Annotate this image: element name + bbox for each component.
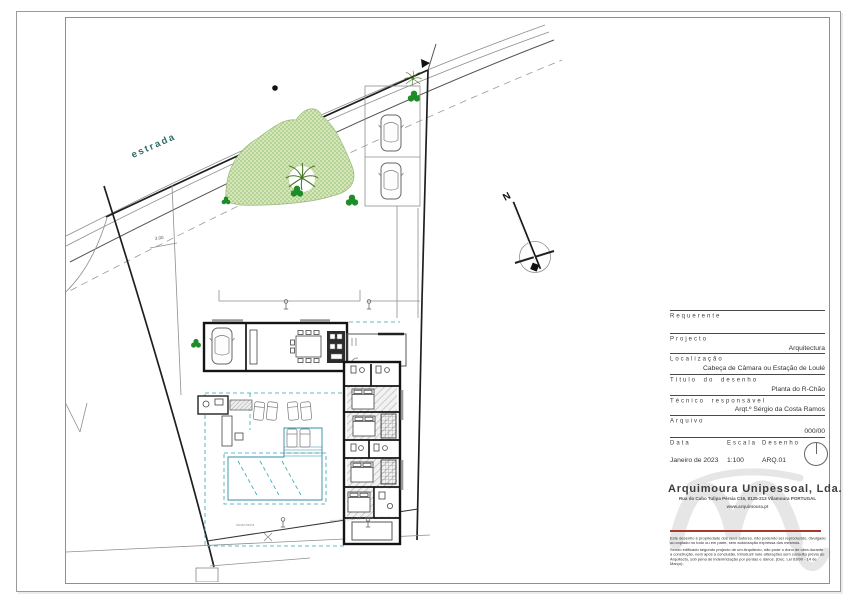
stamp-circle-icon [804,442,828,466]
field-label-projecto: Projecto [670,335,825,342]
company-address: Rua do Cabo Tulipa Pérsia C16, 8125-213 … [670,496,825,501]
field-label-requerente: Requerente [670,312,825,319]
disclaimer-paragraph-2: Sendo edificado segundo projecto de um A… [670,547,826,566]
disclaimer-paragraph-1: Este desenho é propriedade dos seus auto… [670,536,826,545]
drawing-sheet: estrada 3.00 [0,0,860,601]
field-value-localizacao: Cabeça de Câmara ou Estação de Loulé [670,364,825,372]
field-label-tecnico: Técnico responsável [670,397,825,404]
field-value-projecto: Arquitectura [670,344,825,352]
field-label-arquivo: Arquivo [670,417,825,424]
legal-disclaimer: Este desenho é propriedade dos seus auto… [670,536,826,568]
company-name: Arquimoura Unipessoal, Lda. [668,483,828,495]
company-website: www.arquimoura.pt [670,504,825,509]
field-value-titulo: Planta do R-Chão [670,385,825,393]
field-value-tecnico: Arqt.º Sérgio da Costa Ramos [670,405,825,413]
field-value-arquivo: 000/00 [670,427,825,435]
field-label-localizacao: Localização [670,355,825,362]
accent-divider [670,530,821,532]
field-label-titulo: Título do desenho [670,376,825,383]
